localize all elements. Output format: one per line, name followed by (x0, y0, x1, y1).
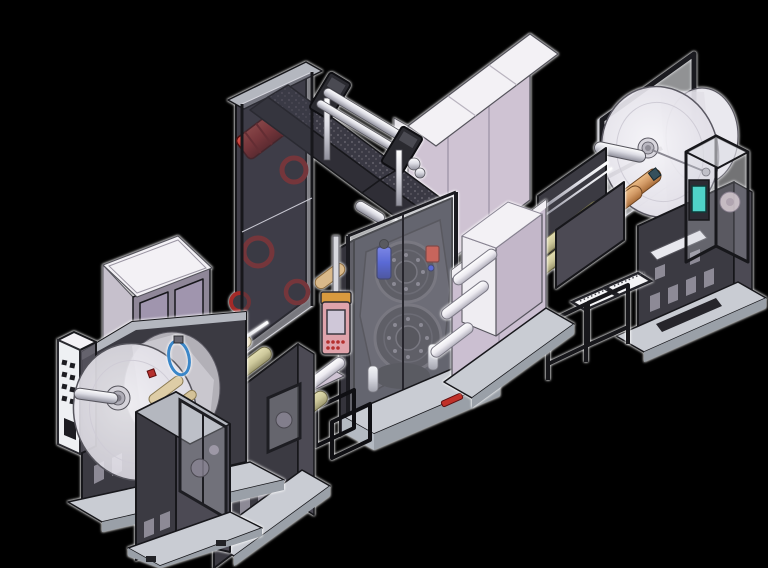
hmi-pole (333, 236, 339, 296)
teal-screen (692, 186, 706, 212)
rail-post (396, 150, 402, 206)
hmi-screen (327, 310, 345, 334)
rewind-control-box (686, 136, 748, 262)
cad-render-canvas (0, 0, 768, 568)
rail-end-knob (415, 168, 425, 178)
machine-foot (216, 540, 226, 546)
machine-foot (146, 556, 156, 562)
tower-smoked-glass (242, 72, 312, 356)
